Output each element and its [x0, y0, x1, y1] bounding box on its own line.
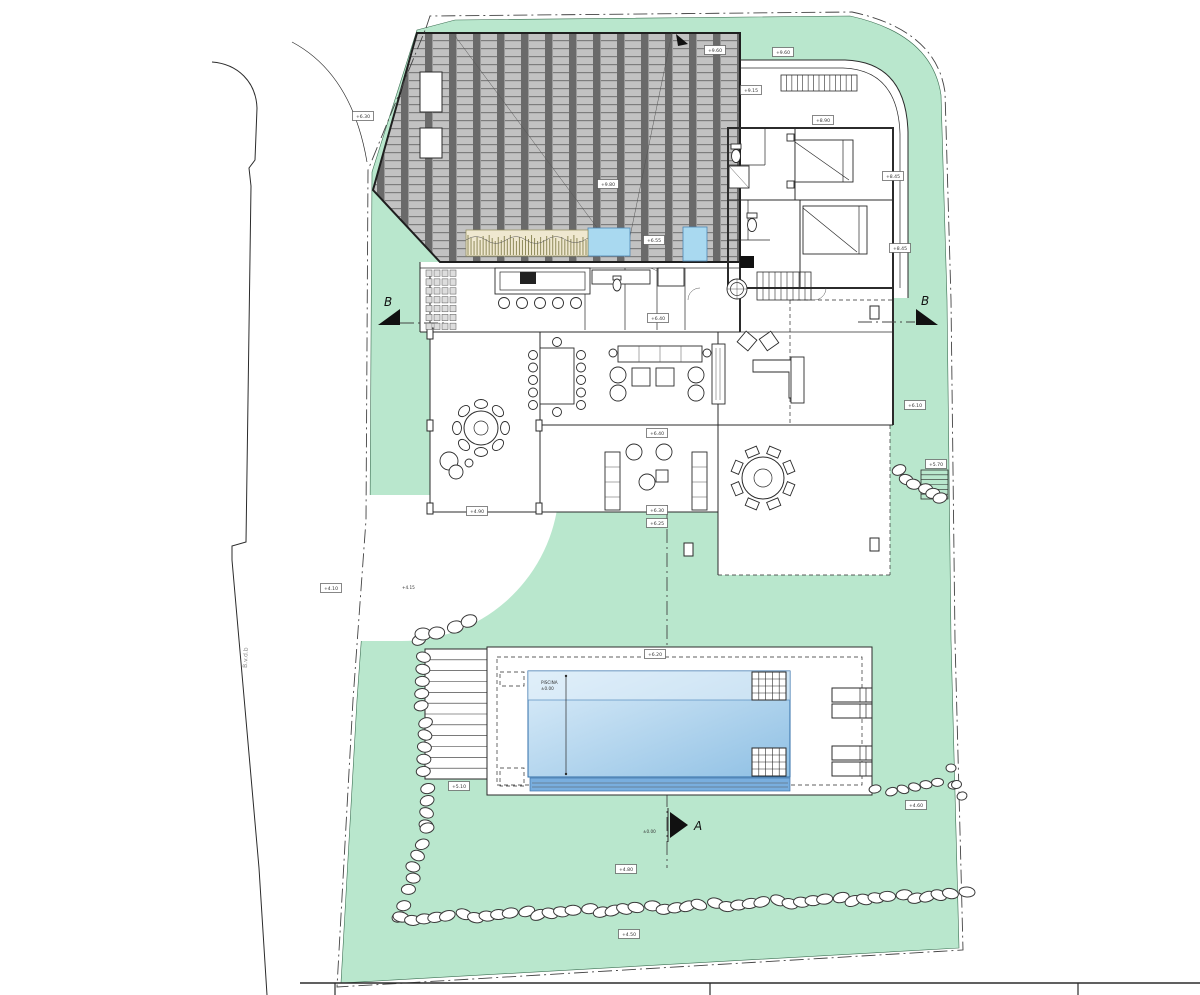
- level-label-text: +9.15: [744, 88, 758, 94]
- level-label-text: +8.90: [816, 118, 830, 124]
- section-a-label: A: [693, 819, 702, 833]
- dining-chair: [553, 338, 562, 347]
- toilet: [732, 150, 741, 163]
- site-plan-canvas: B.v.d.b: [0, 0, 1200, 995]
- dining-chair: [529, 388, 538, 397]
- dining-chair: [529, 376, 538, 385]
- patio-chair: [453, 422, 462, 435]
- utility-block: [740, 256, 754, 268]
- level-label-text: +8.45: [893, 246, 907, 252]
- water-feature: [683, 227, 707, 261]
- dining-chair: [577, 363, 586, 372]
- entry-feature: [727, 279, 747, 299]
- road-entry-arc: [292, 42, 367, 162]
- patio-table: [742, 457, 784, 499]
- armchair: [656, 444, 672, 460]
- stone: [565, 905, 581, 915]
- level-label-text: +4.50: [622, 932, 636, 938]
- level-label-text: +4.10: [324, 586, 338, 592]
- dining-chair: [529, 401, 538, 410]
- armchair: [626, 444, 642, 460]
- coffee-table: [656, 368, 674, 386]
- bar-stool: [571, 298, 582, 309]
- fridge: [658, 268, 684, 286]
- road-name-label: B.v.d.b: [242, 647, 250, 668]
- level-label-text: +4.80: [619, 867, 633, 873]
- dining-chair: [577, 351, 586, 360]
- stone: [946, 764, 956, 772]
- level-label-text: +6.30: [356, 114, 370, 120]
- bed: [795, 140, 853, 182]
- armchair: [688, 367, 704, 383]
- stone: [956, 791, 968, 801]
- bedroom-1: [787, 134, 853, 188]
- round-side-table: [639, 474, 655, 490]
- dining-table: [540, 348, 574, 404]
- bar-stool: [535, 298, 546, 309]
- level-label-text: +4.60: [909, 803, 923, 809]
- pool-shelf: [528, 671, 790, 700]
- level-label-text: +6.20: [648, 652, 662, 658]
- pool-overflow: [530, 778, 790, 791]
- small-table: [465, 459, 473, 467]
- dining-chair: [577, 401, 586, 410]
- toilet: [613, 279, 621, 291]
- level-label-text: +4.90: [470, 509, 484, 515]
- hob: [520, 272, 536, 284]
- section-a-level-text: ±0.00: [643, 829, 656, 834]
- level-label-text: +6.30: [650, 508, 664, 514]
- patio-chair: [501, 422, 510, 435]
- stone: [415, 676, 429, 686]
- dining-chair: [553, 408, 562, 417]
- bathroom-2: [747, 213, 757, 232]
- level-label-text: +5.70: [929, 462, 943, 468]
- bar-stool: [553, 298, 564, 309]
- level-label-text: +6.55: [647, 238, 661, 244]
- level-label-text: +6.10: [908, 403, 922, 409]
- guest-wc: [613, 276, 621, 291]
- bed: [803, 206, 867, 254]
- dining-chair: [529, 351, 538, 360]
- section-b-left-label: B: [384, 295, 392, 309]
- toilet: [748, 219, 757, 232]
- road: B.v.d.b: [212, 42, 367, 995]
- armchair: [610, 385, 626, 401]
- level-label-text: +9.80: [601, 182, 615, 188]
- level-label-text: +6.40: [651, 316, 665, 322]
- section-b-right-label: B: [921, 294, 929, 308]
- side-table: [656, 470, 668, 482]
- level-label-text: +9.60: [776, 50, 790, 56]
- pool-sublabel: ±0.00: [541, 686, 554, 691]
- dining-chair: [577, 388, 586, 397]
- armchair: [610, 367, 626, 383]
- stone: [959, 886, 976, 897]
- tv-cabinet: [791, 357, 804, 403]
- patio-chair: [475, 400, 488, 409]
- pool-area: PISCINA ±0.00: [425, 647, 872, 795]
- tv-bench: [712, 344, 725, 404]
- bar-stool: [517, 298, 528, 309]
- sofa: [692, 452, 707, 510]
- curved-lounger: [449, 465, 463, 479]
- stone: [931, 778, 943, 786]
- dining-chair: [529, 363, 538, 372]
- level-label-text: +9.60: [708, 48, 722, 54]
- stone: [416, 766, 431, 777]
- pool-label: PISCINA: [541, 680, 558, 685]
- level-label-text: +6.40: [650, 431, 664, 437]
- stone: [401, 884, 415, 894]
- patio-table: [464, 411, 498, 445]
- coffee-table: [632, 368, 650, 386]
- driveway-level-text: +4.15: [402, 585, 415, 590]
- bedroom-2: [803, 206, 867, 254]
- stone: [417, 754, 432, 765]
- road-curb: [212, 62, 267, 995]
- titleblock-edge: [300, 983, 1200, 995]
- stone: [879, 891, 895, 902]
- patio-chair: [475, 448, 488, 457]
- dining-chair: [577, 376, 586, 385]
- bar-stool: [499, 298, 510, 309]
- level-label-text: +5.10: [452, 784, 466, 790]
- sofa: [605, 452, 620, 510]
- level-label-text: +8.45: [886, 174, 900, 180]
- armchair: [688, 385, 704, 401]
- site-plan-page: B.v.d.b: [0, 0, 1200, 995]
- water-feature: [588, 228, 630, 256]
- level-label-text: +6.25: [650, 521, 664, 527]
- planter-bed: [466, 230, 588, 256]
